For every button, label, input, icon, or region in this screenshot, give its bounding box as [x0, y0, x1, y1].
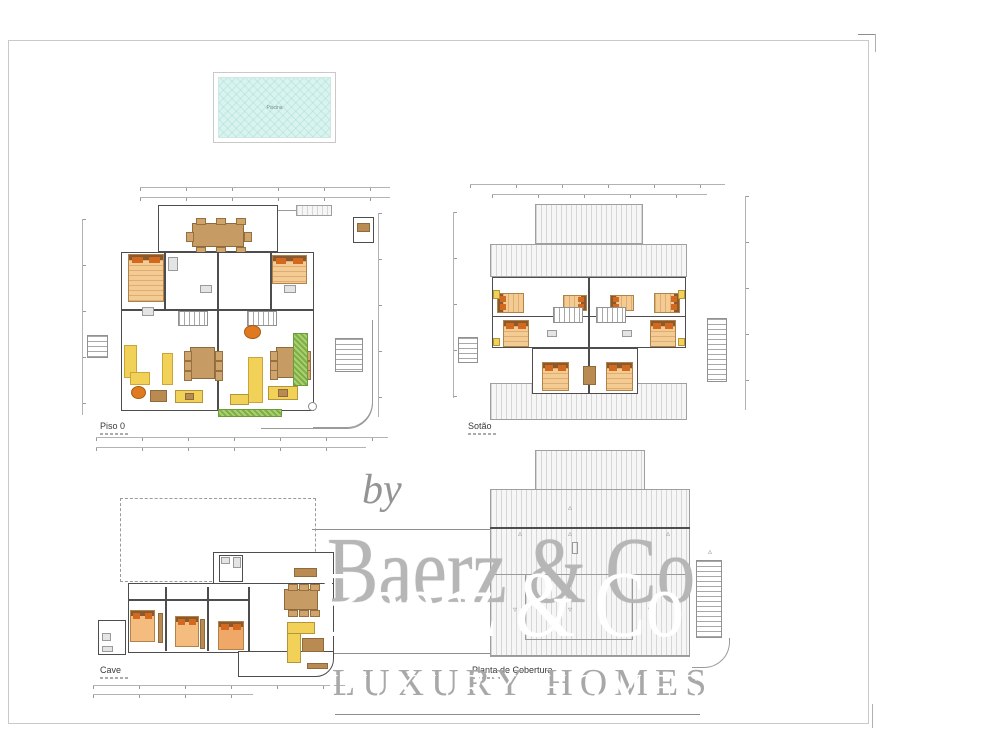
bed-pillow [653, 323, 661, 329]
chair [184, 351, 192, 361]
plan-subtitle-sotao [468, 433, 498, 435]
cave-wall-line [248, 587, 250, 651]
bed-pillow [149, 257, 160, 263]
bed-pillow [578, 297, 584, 301]
bed-pillow [233, 624, 241, 630]
bed-pillow [132, 257, 143, 263]
swimming-pool: Piscina [213, 72, 336, 143]
sotao-fix [622, 330, 632, 337]
chair [184, 371, 192, 381]
floorplan-piso0: Piso 0 [80, 183, 392, 459]
piso0-table [192, 223, 244, 247]
cave-bed [130, 610, 155, 642]
piso0-dim-v [378, 213, 382, 417]
cave-wall-line [207, 587, 209, 651]
bed-pillow [545, 365, 553, 371]
cave-bed [218, 621, 244, 650]
chair [299, 610, 309, 617]
sotao-bed [650, 320, 676, 347]
cave-wall-line [165, 587, 167, 651]
bed-pillow [609, 365, 617, 371]
bed-pillow [178, 619, 185, 625]
piso0-wood [185, 393, 194, 400]
chair [270, 351, 278, 361]
piso0-circ [308, 402, 317, 411]
watermark-tagline: LUXURY HOMES [326, 669, 707, 707]
chair [270, 361, 278, 371]
piso0-fix [284, 285, 296, 293]
bed-pillow [276, 258, 287, 264]
sotao-stair-v [458, 337, 478, 363]
chair [215, 351, 223, 361]
chair [288, 610, 298, 617]
sotao-fix [547, 330, 557, 337]
sotao-counter [678, 290, 685, 299]
sotao-stair-h [596, 307, 626, 323]
cave-table [284, 589, 318, 610]
cobertura-roof [535, 450, 645, 490]
sotao-wood [583, 366, 596, 385]
drawing-sheet-page: Piscina Piso 0SotãoCave▵▵▵▵▵▿▿▿Planta de… [0, 0, 1000, 750]
bed-pillow [293, 258, 304, 264]
sotao-counter [493, 290, 500, 299]
sotao-bed [503, 320, 529, 347]
sotao-counter [678, 338, 685, 346]
plan-title-sotao: Sotão [468, 421, 492, 431]
chair [186, 232, 194, 242]
piso0-table [190, 347, 215, 379]
cave-wood [200, 619, 205, 649]
piso0-round [244, 325, 261, 339]
sotao-stair-h [553, 307, 583, 323]
sotao-counter [493, 338, 500, 346]
bed-pillow [133, 613, 140, 619]
cave-fix [102, 646, 113, 652]
bed-pillow [613, 297, 619, 301]
piso0-fix [200, 285, 212, 293]
chair [244, 232, 252, 242]
cobertura-stair-v [696, 560, 722, 638]
cave-fix [221, 557, 230, 564]
plan-subtitle-cave [100, 677, 130, 679]
piso0-sofa [248, 357, 263, 403]
pool-water: Piscina [218, 77, 331, 138]
bed-pillow [145, 613, 152, 619]
sotao-roof [535, 204, 643, 244]
piso0-stair-v [87, 335, 108, 358]
piso0-fix [168, 257, 178, 271]
piso0-fix [142, 307, 154, 316]
watermark-brand: Baerz & Co [316, 558, 684, 652]
chair [299, 584, 309, 591]
cave-dim-h [93, 694, 253, 698]
piso0-wall-line [164, 252, 166, 309]
piso0-stair-h [247, 311, 277, 326]
piso0-outline-rbr [261, 401, 373, 429]
cave-wood [307, 663, 328, 669]
floorplan-sotao: Sotão [452, 178, 752, 446]
cave-wood [294, 568, 317, 577]
piso0-dim-h [140, 187, 390, 191]
cave-fix [102, 633, 111, 641]
piso0-dim-h [96, 447, 366, 451]
chair [196, 218, 206, 225]
chair [184, 361, 192, 371]
bed-pillow [500, 304, 506, 310]
piso0-bed [272, 255, 307, 284]
corner-mark [875, 34, 876, 52]
piso0-wall-line [217, 252, 219, 411]
section-line [858, 34, 876, 35]
bed-pillow [671, 304, 677, 310]
sotao-wall-line [492, 316, 686, 317]
sotao-dim-h [492, 194, 707, 198]
cave-dim-h [93, 685, 345, 689]
bed-pillow [558, 365, 566, 371]
cobertura-tri: ▵ [708, 548, 718, 558]
sotao-bed [606, 362, 633, 391]
cave-wood [158, 613, 163, 643]
plan-subtitle-piso0 [100, 433, 130, 435]
bed-pillow [221, 624, 229, 630]
bed-pillow [506, 323, 514, 329]
piso0-round [131, 386, 146, 399]
bed-pillow [518, 323, 526, 329]
sotao-dim-h [470, 184, 725, 188]
piso0-counter [230, 394, 249, 405]
sotao-stair-v [707, 318, 727, 382]
piso0-hedge [293, 333, 308, 386]
piso0-wood [150, 390, 167, 402]
cave-fix [233, 557, 241, 568]
piso0-wood [278, 389, 288, 397]
sotao-bed [542, 362, 569, 391]
sotao-dim-v [453, 212, 457, 398]
sotao-dim-v [745, 196, 749, 410]
piso0-sofa [130, 372, 150, 385]
section-line [335, 714, 700, 715]
sotao-roof [490, 244, 687, 277]
watermark-by: by [362, 466, 402, 514]
plan-title-cave: Cave [100, 665, 121, 675]
bed-pillow [665, 323, 673, 329]
piso0-stair-h [178, 311, 208, 326]
bed-pillow [500, 296, 506, 302]
piso0-bed [128, 254, 164, 302]
bed-pillow [622, 365, 630, 371]
piso0-sofa [162, 353, 173, 385]
chair [288, 584, 298, 591]
plan-title-piso0: Piso 0 [100, 421, 125, 431]
piso0-wood [357, 223, 370, 232]
piso0-roof [296, 205, 332, 216]
bed-pillow [671, 296, 677, 302]
pool-label: Piscina [266, 105, 282, 111]
chair [216, 218, 226, 225]
piso0-dim-h [140, 197, 390, 201]
bed-pillow [189, 619, 196, 625]
chair [270, 370, 278, 380]
sotao-bed [654, 293, 680, 313]
piso0-dim-h [96, 437, 388, 441]
cave-wall-line [128, 599, 248, 601]
chair [236, 218, 246, 225]
cobertura-tri: ▵ [568, 504, 578, 514]
chair [215, 361, 223, 371]
cave-counter [287, 622, 315, 634]
piso0-dim-v [82, 219, 86, 415]
corner-mark [872, 704, 873, 728]
chair [215, 371, 223, 381]
cave-bed [175, 616, 199, 647]
sotao-bed [497, 293, 524, 313]
